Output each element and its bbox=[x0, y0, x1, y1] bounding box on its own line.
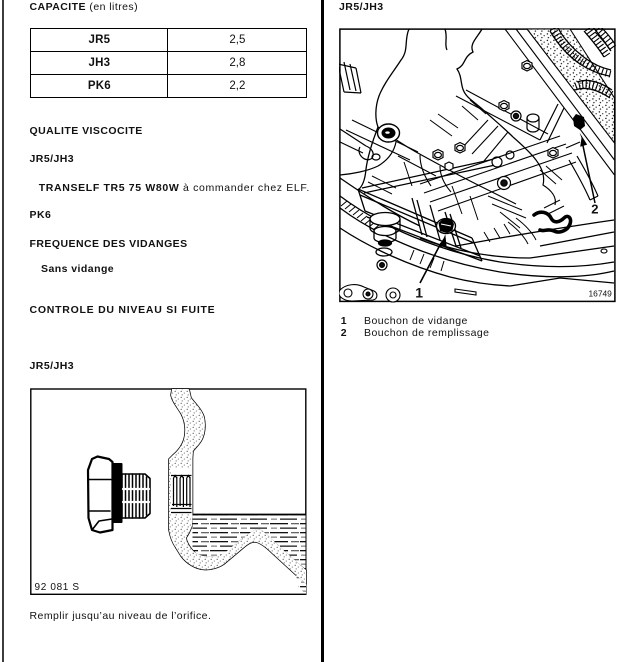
svg-text:92 081 S: 92 081 S bbox=[35, 582, 80, 593]
svg-text:16749: 16749 bbox=[589, 288, 613, 298]
svg-text:1: 1 bbox=[415, 284, 423, 300]
svg-text:2: 2 bbox=[591, 202, 598, 217]
